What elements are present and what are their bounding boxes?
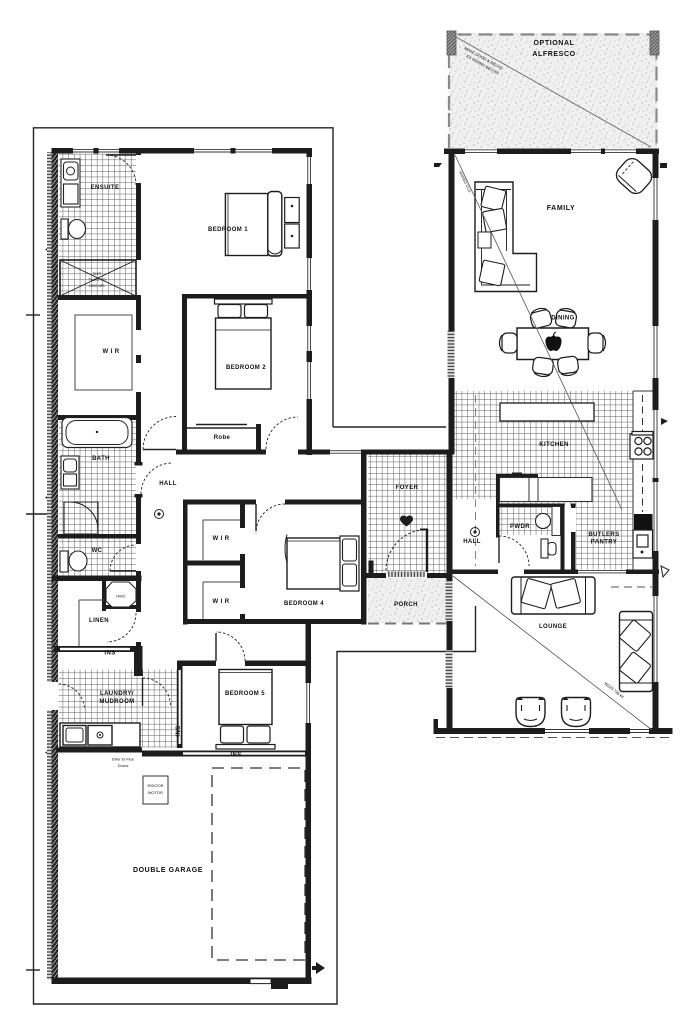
svg-text:DINING: DINING bbox=[551, 316, 574, 322]
svg-text:BEDROOM 1: BEDROOM 1 bbox=[208, 227, 248, 233]
svg-text:ENSUITE: ENSUITE bbox=[91, 185, 120, 191]
svg-text:SHR: SHR bbox=[93, 271, 102, 276]
svg-text:Robe: Robe bbox=[214, 435, 231, 441]
svg-text:DOUBLE GARAGE: DOUBLE GARAGE bbox=[133, 867, 203, 874]
svg-text:W I R: W I R bbox=[213, 599, 230, 605]
svg-text:BEDROOM 2: BEDROOM 2 bbox=[226, 365, 266, 371]
svg-text:1800 AFL: 1800 AFL bbox=[88, 283, 106, 288]
svg-text:BEDROOM 4: BEDROOM 4 bbox=[284, 601, 324, 607]
svg-text:W I R: W I R bbox=[103, 349, 120, 355]
svg-text:MOTOR: MOTOR bbox=[148, 790, 163, 795]
svg-text:PORCH: PORCH bbox=[394, 602, 418, 608]
svg-text:W I R: W I R bbox=[213, 536, 230, 542]
svg-text:KITCHEN: KITCHEN bbox=[539, 442, 568, 448]
svg-text:Doors: Doors bbox=[118, 763, 129, 768]
svg-text:BUTLERS: BUTLERS bbox=[588, 532, 619, 538]
svg-text:BATH: BATH bbox=[92, 456, 110, 462]
svg-text:TILED TO: TILED TO bbox=[88, 277, 106, 282]
svg-text:BEDROOM 5: BEDROOM 5 bbox=[225, 691, 265, 697]
svg-text:WC: WC bbox=[92, 548, 103, 554]
svg-text:LAUNDRY/: LAUNDRY/ bbox=[100, 691, 134, 697]
svg-text:PWDR: PWDR bbox=[510, 524, 530, 530]
svg-text:FAMILY: FAMILY bbox=[547, 205, 576, 212]
svg-text:R/DOOR: R/DOOR bbox=[148, 783, 164, 788]
svg-text:OPTIONAL: OPTIONAL bbox=[534, 40, 575, 47]
svg-text:INS: INS bbox=[104, 651, 115, 657]
svg-text:Drier to Flue: Drier to Flue bbox=[112, 757, 135, 762]
svg-text:ALFRESCO: ALFRESCO bbox=[532, 51, 575, 58]
svg-text:INS: INS bbox=[176, 725, 182, 736]
svg-text:FOYER: FOYER bbox=[396, 485, 419, 491]
svg-text:MUDROOM: MUDROOM bbox=[99, 699, 134, 705]
svg-text:LOUNGE: LOUNGE bbox=[539, 624, 567, 630]
svg-text:HWC: HWC bbox=[116, 594, 126, 599]
svg-text:HALL: HALL bbox=[463, 539, 481, 545]
svg-text:HALL: HALL bbox=[159, 481, 177, 487]
svg-text:PANTRY: PANTRY bbox=[591, 540, 617, 546]
svg-text:INS: INS bbox=[230, 753, 241, 759]
svg-text:LINEN: LINEN bbox=[89, 618, 109, 624]
